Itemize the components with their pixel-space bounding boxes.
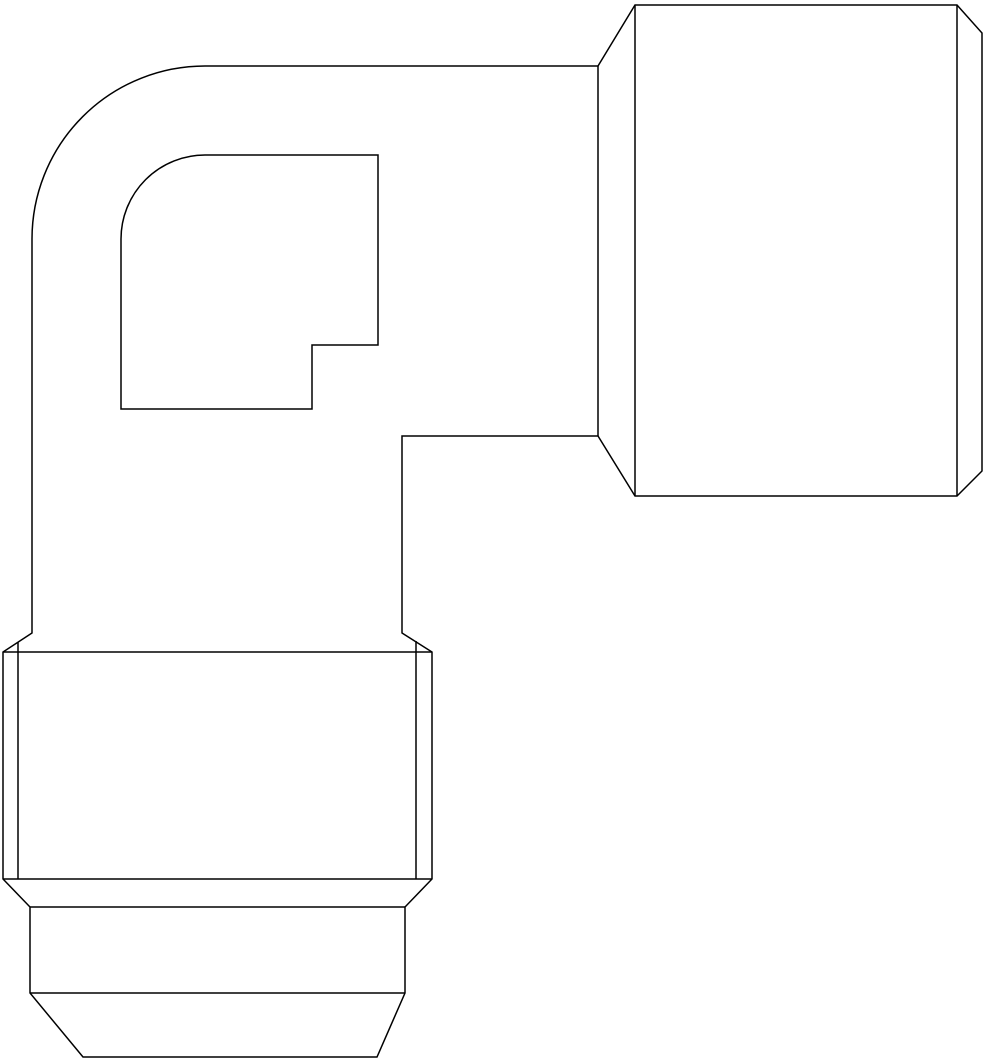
drawing-canvas <box>0 0 984 1064</box>
elbow-fitting-drawing <box>0 0 984 1064</box>
outer-silhouette <box>3 5 982 1057</box>
inner-bore-profile <box>121 155 378 409</box>
